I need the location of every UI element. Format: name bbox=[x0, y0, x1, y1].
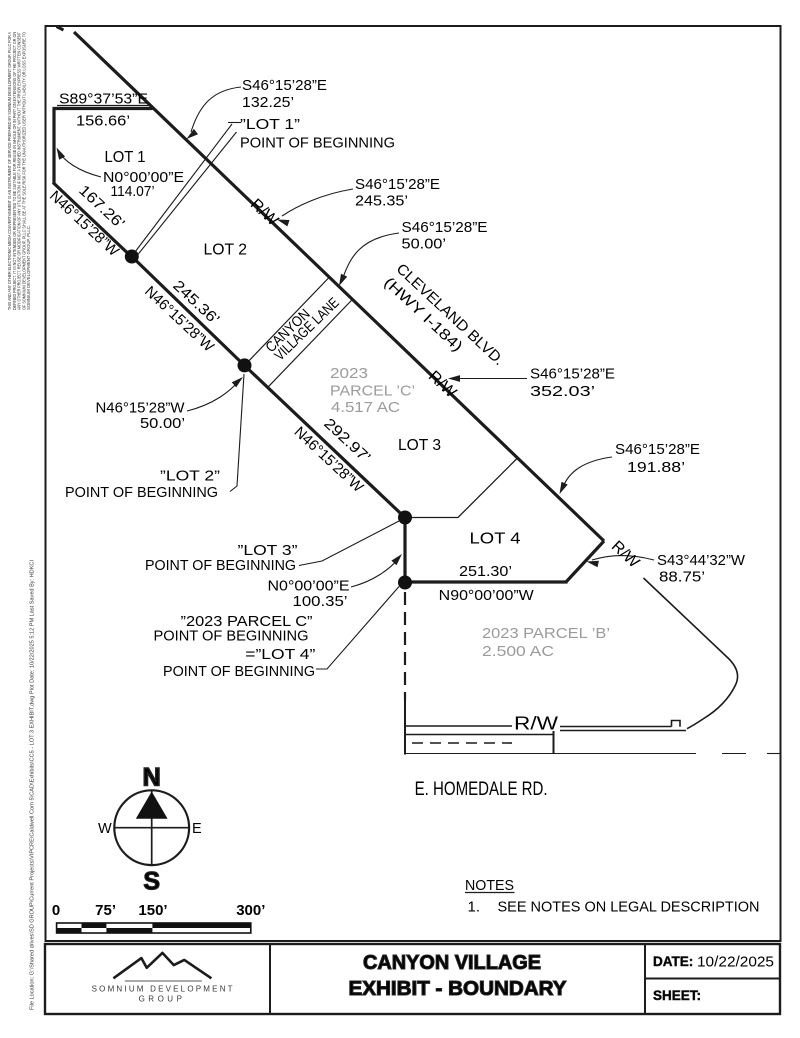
svg-text:300’: 300’ bbox=[236, 902, 265, 919]
svg-text:LOT 2: LOT 2 bbox=[204, 242, 248, 259]
svg-text:S46°15’28”E: S46°15’28”E bbox=[355, 176, 440, 193]
svg-text:”LOT 2”: ”LOT 2” bbox=[160, 468, 220, 485]
svg-text:CANYON VILLAGE: CANYON VILLAGE bbox=[363, 952, 541, 974]
svg-text:352.03’: 352.03’ bbox=[530, 383, 595, 400]
svg-text:88.75’: 88.75’ bbox=[659, 569, 705, 586]
svg-text:251.30’: 251.30’ bbox=[459, 563, 512, 580]
svg-text:S43°44’32”W: S43°44’32”W bbox=[657, 552, 746, 569]
svg-text:2023 PARCEL ’B’: 2023 PARCEL ’B’ bbox=[482, 625, 610, 642]
svg-text:132.25’: 132.25’ bbox=[242, 94, 294, 111]
svg-text:LOT 3: LOT 3 bbox=[398, 437, 441, 454]
svg-text:S46°15’28”E: S46°15’28”E bbox=[402, 219, 488, 236]
svg-text:2.500 AC: 2.500 AC bbox=[482, 643, 554, 660]
svg-text:E: E bbox=[192, 821, 202, 837]
svg-text:N90°00’00”W: N90°00’00”W bbox=[439, 587, 535, 604]
svg-text:”LOT 1”: ”LOT 1” bbox=[240, 116, 300, 133]
svg-text:LOT 1: LOT 1 bbox=[105, 149, 146, 166]
svg-text:POINT OF BEGINNING: POINT OF BEGINNING bbox=[154, 628, 309, 645]
svg-text:POINT OF BEGINNING: POINT OF BEGINNING bbox=[145, 557, 296, 574]
svg-text:SHEET:: SHEET: bbox=[653, 988, 701, 1003]
svg-text:=”LOT 4”: =”LOT 4” bbox=[245, 646, 315, 663]
svg-text:2023: 2023 bbox=[330, 365, 368, 382]
svg-text:150’: 150’ bbox=[138, 902, 167, 919]
svg-text:POINT OF BEGINNING: POINT OF BEGINNING bbox=[163, 663, 315, 680]
svg-text:100.35’: 100.35’ bbox=[293, 593, 348, 610]
svg-text:DATE:: DATE: bbox=[653, 954, 693, 969]
svg-text:LOT 4: LOT 4 bbox=[470, 531, 521, 548]
svg-text:N0°00’00”E: N0°00’00”E bbox=[268, 578, 350, 595]
svg-text:10/22/2025: 10/22/2025 bbox=[697, 955, 774, 971]
svg-text:N46°15’28”W: N46°15’28”W bbox=[96, 400, 186, 417]
svg-text:File Location: G:\Shared drive: File Location: G:\Shared drives\SD GROUP… bbox=[30, 560, 36, 1010]
svg-text:W: W bbox=[98, 821, 112, 837]
svg-text:114.07’: 114.07’ bbox=[111, 183, 155, 200]
svg-text:NOTES: NOTES bbox=[465, 877, 514, 894]
svg-text:R/W: R/W bbox=[514, 714, 558, 734]
svg-text:PARCEL ’C’: PARCEL ’C’ bbox=[330, 383, 415, 400]
svg-text:191.88’: 191.88’ bbox=[627, 459, 685, 476]
svg-text:50.00’: 50.00’ bbox=[140, 415, 185, 432]
svg-text:S: S bbox=[143, 868, 160, 896]
svg-text:75’: 75’ bbox=[95, 902, 116, 919]
svg-text:1.: 1. bbox=[468, 899, 481, 916]
svg-text:SEE NOTES ON LEGAL DESCRIPTION: SEE NOTES ON LEGAL DESCRIPTION bbox=[498, 899, 760, 916]
svg-text:0: 0 bbox=[52, 902, 60, 919]
svg-text:S46°15’28”E: S46°15’28”E bbox=[530, 366, 615, 383]
svg-text:POINT OF BEGINNING: POINT OF BEGINNING bbox=[65, 484, 218, 501]
svg-text:N: N bbox=[143, 764, 161, 792]
svg-text:4.517 AC: 4.517 AC bbox=[331, 399, 400, 416]
svg-text:S46°15’28”E: S46°15’28”E bbox=[242, 77, 327, 94]
svg-text:E. HOMEDALE RD.: E. HOMEDALE RD. bbox=[415, 779, 548, 800]
svg-text:GROUP: GROUP bbox=[139, 995, 186, 1004]
svg-text:156.66’: 156.66’ bbox=[76, 113, 130, 130]
svg-text:SOMNIUM DEVELOPMENT: SOMNIUM DEVELOPMENT bbox=[92, 984, 235, 993]
svg-text:245.35’: 245.35’ bbox=[355, 193, 408, 210]
svg-text:POINT OF BEGINNING: POINT OF BEGINNING bbox=[240, 135, 395, 152]
svg-text:S46°15’28”E: S46°15’28”E bbox=[615, 441, 700, 458]
svg-text:50.00’: 50.00’ bbox=[402, 236, 447, 253]
svg-text:SOMNIUM DEVELOPMENT GROUP, PLL: SOMNIUM DEVELOPMENT GROUP, PLLC. bbox=[26, 225, 31, 310]
svg-text:EXHIBIT - BOUNDARY: EXHIBIT - BOUNDARY bbox=[349, 978, 568, 1000]
